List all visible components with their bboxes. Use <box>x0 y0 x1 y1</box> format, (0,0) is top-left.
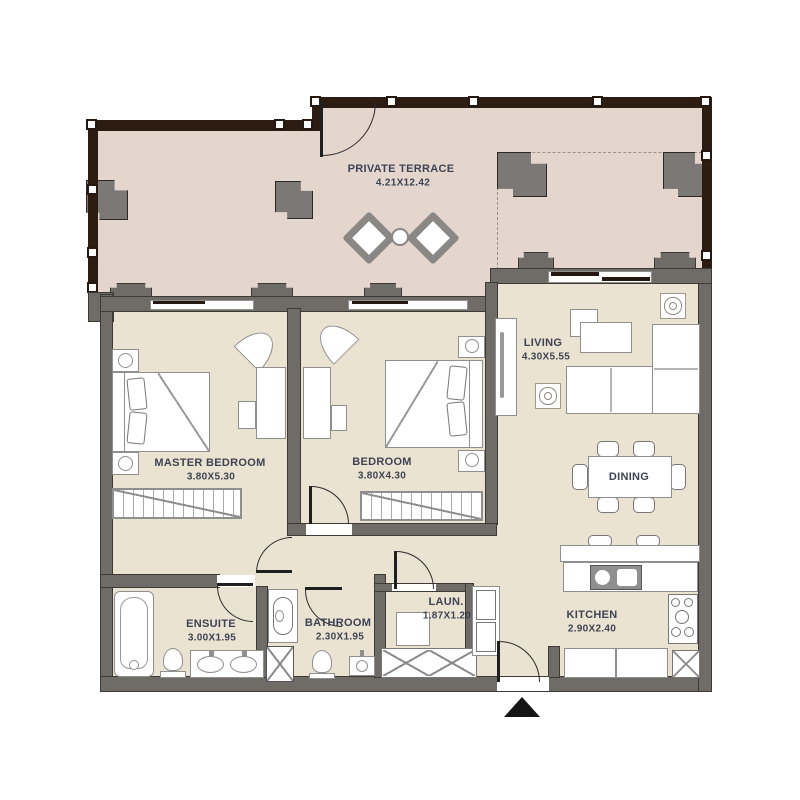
room-dims-private-terrace: 4.21X12.42 <box>376 178 430 189</box>
lamp-icon <box>465 453 479 467</box>
terrace-wall-band-top-left <box>88 120 320 131</box>
lounge-chair-cushion <box>351 220 388 257</box>
closet-door-panel <box>476 622 496 652</box>
plant-icon <box>660 293 686 319</box>
room-dims-ensuite: 3.00X1.95 <box>188 633 236 644</box>
basin-icon <box>230 656 257 673</box>
coffee-table <box>580 322 632 353</box>
wardrobe <box>360 491 483 521</box>
desk-chair <box>238 401 256 429</box>
shower-tray-icon <box>266 646 294 682</box>
room-label-kitchen: KITCHEN <box>567 609 618 621</box>
basin-bowl <box>356 660 368 672</box>
pillow <box>446 401 467 437</box>
wardrobe <box>112 488 242 519</box>
dining-chair <box>572 464 588 490</box>
living-sliding-door-panel <box>551 272 599 276</box>
room-dims-bathroom: 2.30X1.95 <box>316 632 364 643</box>
wall-entry-stub <box>548 646 560 678</box>
room-label-dining: DINING <box>609 471 649 483</box>
sink-bowl <box>595 570 610 585</box>
plant-ring <box>539 387 556 404</box>
tv-unit <box>495 318 517 416</box>
burner <box>675 610 689 624</box>
window-post <box>700 96 711 107</box>
plant-icon <box>535 383 561 409</box>
bedroom-window-sash <box>352 301 408 304</box>
bathtub-inner <box>120 597 148 669</box>
room-label-ensuite: ENSUITE <box>186 618 236 630</box>
closet-door-panel <box>476 590 496 620</box>
window-post <box>592 96 603 107</box>
plant-ring <box>664 297 681 314</box>
tv-icon <box>500 332 504 398</box>
room-dims-kitchen: 2.90X2.40 <box>568 624 616 635</box>
service-shaft-icon <box>672 650 700 678</box>
desk <box>256 367 286 439</box>
tap-icon <box>209 651 214 657</box>
burner <box>684 598 693 607</box>
room-label-laundry: LAUN. <box>428 596 463 608</box>
pillow <box>446 365 467 401</box>
floor-plan: PRIVATE TERRACE 4.21X12.42 MASTER BEDROO… <box>0 0 800 800</box>
room-label-master-bedroom: MASTER BEDROOM <box>154 457 265 469</box>
dining-chair <box>597 441 619 457</box>
room-label-private-terrace: PRIVATE TERRACE <box>348 163 455 175</box>
kitchen-sink-icon <box>590 565 642 590</box>
toilet-tank <box>309 673 335 679</box>
room-dims-master-bedroom: 3.80X5.30 <box>187 472 235 483</box>
room-dims-laundry: 1.87X1.20 <box>423 611 471 622</box>
window-post <box>86 119 97 130</box>
burner <box>671 627 681 637</box>
room-label-bathroom: BATHROOM <box>305 617 371 629</box>
dining-chair <box>633 497 655 513</box>
faucet-icon <box>129 660 139 670</box>
toilet-icon <box>163 648 183 671</box>
master-window-sash <box>153 301 205 304</box>
wall-ensuite-north <box>100 574 220 588</box>
pillow <box>126 377 147 411</box>
bed-headboard <box>469 360 483 448</box>
basin-icon <box>197 656 224 673</box>
toilet-icon <box>312 650 332 673</box>
kitchen-base-cabinet <box>616 648 668 678</box>
sofa-seam <box>610 368 612 412</box>
drain-icon <box>275 610 284 622</box>
dining-chair <box>597 497 619 513</box>
window-post <box>701 150 712 161</box>
wall-master-east <box>287 308 301 528</box>
bed-fold <box>386 361 438 447</box>
window-post <box>274 119 285 130</box>
terrace-table-icon <box>391 228 409 246</box>
desk-chair <box>331 405 347 431</box>
tap-icon <box>242 651 247 657</box>
bedroom-door-gap <box>306 524 352 535</box>
terrace-wall-band-right <box>702 106 712 270</box>
sink-bowl <box>617 569 637 586</box>
toilet-tank <box>160 671 186 678</box>
window-post <box>468 96 479 107</box>
lamp-icon <box>465 339 479 353</box>
entry-arrow-icon <box>504 697 540 717</box>
wall-bottom <box>100 676 712 692</box>
dining-chair <box>633 441 655 457</box>
window-post <box>87 184 98 195</box>
plant-core <box>669 302 677 310</box>
terrace-wall-band-left <box>88 129 98 283</box>
desk <box>303 367 331 439</box>
sofa-seam <box>654 368 698 370</box>
lounge-chair-cushion <box>415 220 452 257</box>
burner <box>684 627 694 637</box>
room-dims-bedroom: 3.80X4.30 <box>358 471 406 482</box>
room-dims-living: 4.30X5.55 <box>522 352 570 363</box>
lamp-icon <box>118 456 133 471</box>
room-label-living: LIVING <box>524 337 562 349</box>
window-post <box>386 96 397 107</box>
kitchen-island <box>560 545 700 562</box>
window-post <box>701 250 712 261</box>
dining-chair <box>670 464 686 490</box>
living-sliding-door-panel <box>602 277 650 281</box>
window-post <box>87 247 98 258</box>
pillow <box>126 411 147 445</box>
storage-cross <box>383 650 429 676</box>
kitchen-base-cabinet <box>564 648 616 678</box>
room-label-bedroom: BEDROOM <box>352 456 412 468</box>
master-bed-fold <box>158 373 209 451</box>
storage-cross <box>429 650 475 676</box>
burner <box>671 598 680 607</box>
tap-icon <box>360 650 364 657</box>
plant-core <box>544 392 552 400</box>
window-post <box>302 119 313 130</box>
lamp-icon <box>118 353 133 368</box>
wall-right <box>698 268 712 692</box>
